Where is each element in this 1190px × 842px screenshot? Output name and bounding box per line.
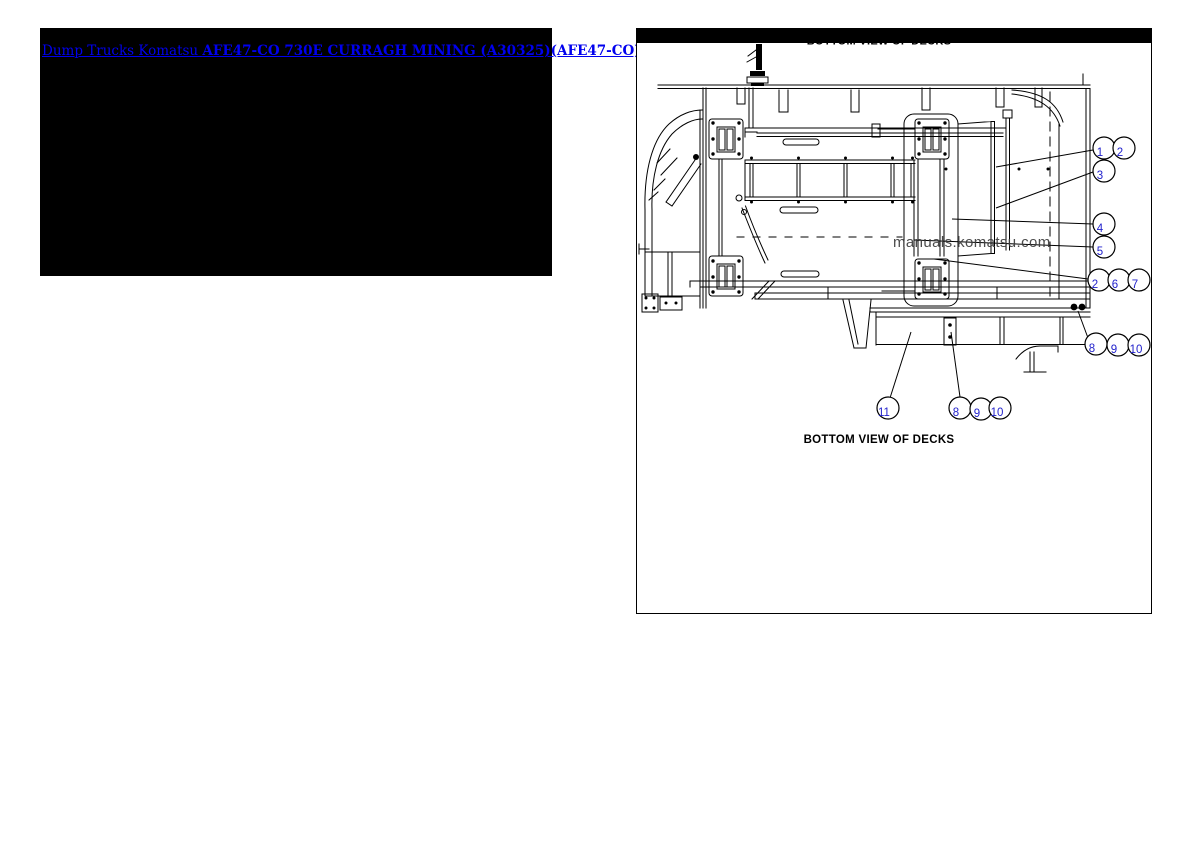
callout-number[interactable]: 11 (878, 407, 890, 419)
callout-5[interactable]: 5 (1093, 236, 1115, 258)
callout-6[interactable]: 6 (1108, 269, 1130, 291)
callout-number[interactable]: 2 (1092, 279, 1098, 291)
callout-number[interactable]: 5 (1097, 246, 1103, 258)
callout-number[interactable]: 7 (1132, 279, 1138, 291)
callout-number[interactable]: 3 (1097, 170, 1103, 182)
callout-8[interactable]: 8 (1085, 333, 1107, 355)
panel-border (637, 29, 1152, 614)
callout-number[interactable]: 8 (1089, 343, 1095, 355)
callout-2b[interactable]: 2 (1088, 269, 1110, 291)
callout-11[interactable]: 11 (877, 397, 899, 419)
callout-10[interactable]: 10 (1128, 334, 1150, 356)
diagram-caption: BOTTOM VIEW OF DECKS (804, 434, 955, 446)
callout-8b[interactable]: 8 (949, 397, 971, 419)
callout-number[interactable]: 6 (1112, 279, 1118, 291)
callout-number[interactable]: 9 (974, 408, 980, 420)
callout-1[interactable]: 1 (1093, 137, 1115, 159)
callout-4[interactable]: 4 (1093, 213, 1115, 235)
callout-number[interactable]: 10 (991, 407, 1004, 419)
callout-number[interactable]: 9 (1111, 344, 1117, 356)
callout-10b[interactable]: 10 (989, 397, 1011, 419)
callout-2[interactable]: 2 (1113, 137, 1135, 159)
callout-number[interactable]: 10 (1130, 344, 1143, 356)
callout-7[interactable]: 7 (1128, 269, 1150, 291)
callout-3[interactable]: 3 (1093, 160, 1115, 182)
callout-9[interactable]: 9 (1107, 334, 1129, 356)
callout-number[interactable]: 1 (1097, 147, 1103, 159)
callout-number[interactable]: 4 (1097, 223, 1104, 235)
panel-title-bar (636, 28, 1152, 43)
callout-number[interactable]: 2 (1117, 147, 1123, 159)
watermark: manuals.komatsu.com (893, 234, 1051, 251)
deck-diagram: BOTTOM VIEW OF DECKS (0, 0, 1190, 842)
callout-number[interactable]: 8 (953, 407, 959, 419)
